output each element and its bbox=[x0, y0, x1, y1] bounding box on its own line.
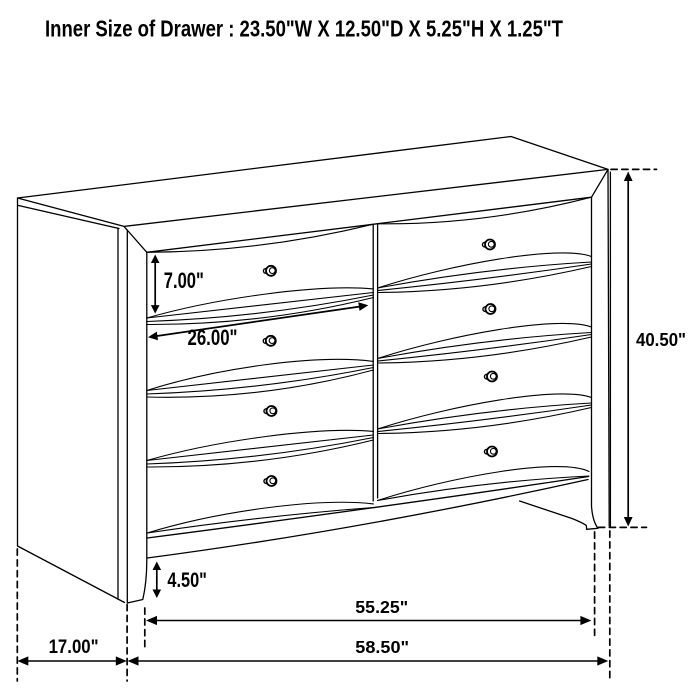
svg-text:4.50": 4.50" bbox=[167, 569, 207, 592]
svg-text:40.50": 40.50" bbox=[636, 330, 686, 350]
svg-text:7.00": 7.00" bbox=[164, 268, 204, 293]
svg-text:17.00": 17.00" bbox=[49, 637, 99, 658]
svg-text:26.00": 26.00" bbox=[188, 325, 238, 350]
svg-text:58.50": 58.50" bbox=[355, 637, 409, 657]
svg-text:55.25": 55.25" bbox=[355, 597, 408, 617]
svg-text:Inner Size of Drawer : 23.50"W: Inner Size of Drawer : 23.50"W X 12.50"D… bbox=[45, 16, 563, 42]
